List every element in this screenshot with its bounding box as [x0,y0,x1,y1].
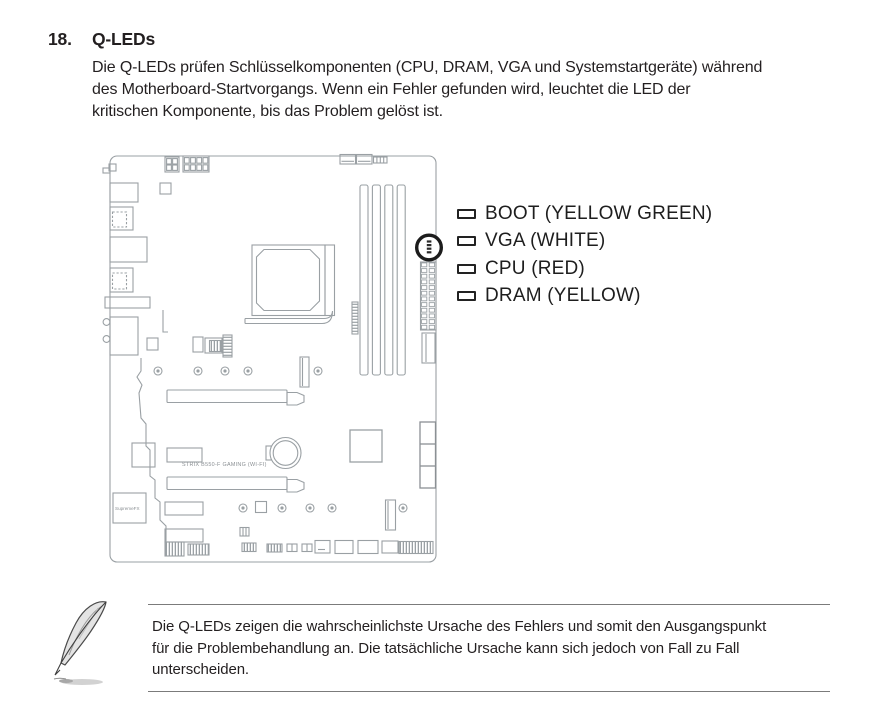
qled-legend-row-cpu: CPU (RED) [457,255,585,282]
eps-power-connectors [165,156,209,172]
note-line: für die Problembehandlung an. Die tatsäc… [152,638,766,660]
usb-front-header [422,333,435,363]
section-title: Q-LEDs [92,29,155,50]
board-name-text: STRIX B550-F GAMING (WI-FI) [182,462,267,468]
bottom-edge-headers [165,541,433,557]
m2-screw-standoffs [154,357,322,387]
note-divider-top [148,604,830,605]
header-square [160,183,171,194]
pcie-slot-1 [167,390,304,405]
led-rect-icon [457,236,476,246]
vertical-label-bar [352,302,358,334]
note-divider-bottom [148,691,830,692]
qled-legend-row-vga: VGA (WHITE) [457,227,605,254]
led-rect-icon [457,264,476,274]
qled-label: BOOT (YELLOW GREEN) [485,203,712,225]
section-number: 18. [48,29,72,50]
sata-ports [420,422,436,488]
note-line: Die Q-LEDs zeigen die wahrscheinlichste … [152,616,766,638]
led-rect-icon [457,291,476,301]
cpu-socket [245,245,335,324]
note-feather-icon [52,599,114,691]
intro-line: Die Q-LEDs prüfen Schlüsselkomponenten (… [92,57,762,79]
audio-cap-block [132,443,155,467]
manual-page: 18. Q-LEDs Die Q-LEDs prüfen Schlüsselko… [0,0,882,726]
audio-trace-line [137,358,166,556]
intro-line: kritischen Komponente, bis das Problem g… [92,101,762,123]
note-text: Die Q-LEDs zeigen die wahrscheinlichste … [152,616,766,681]
pcie-x1-slots [165,502,203,542]
qled-label: CPU (RED) [485,258,585,280]
cmos-battery [266,438,301,469]
qled-legend-row-dram: DRAM (YELLOW) [457,282,641,309]
pcie-slot-2 [167,477,304,492]
onboard-chips [147,310,232,357]
led-rect-icon [457,209,476,219]
chipset [350,430,382,462]
intro-paragraph: Die Q-LEDs prüfen Schlüsselkomponenten (… [92,57,762,123]
supremefx-label: SupremeFX [115,506,140,511]
qled-label: VGA (WHITE) [485,230,605,252]
rear-io-ports [103,164,150,355]
dimm-slots [360,185,405,375]
note-line: unterscheiden. [152,659,766,681]
qled-indicator-circle [417,235,442,260]
motherboard-diagram: STRIX B550-F GAMING (WI-FI) SupremeFX [98,145,443,581]
intro-line: des Motherboard-Startvorgangs. Wenn ein … [92,79,762,101]
m2-slot-connector [167,448,202,462]
qled-label: DRAM (YELLOW) [485,285,641,307]
bottom-m2-area [239,500,407,536]
qled-legend-row-boot: BOOT (YELLOW GREEN) [457,200,712,227]
atx-24pin-connector [421,262,437,330]
